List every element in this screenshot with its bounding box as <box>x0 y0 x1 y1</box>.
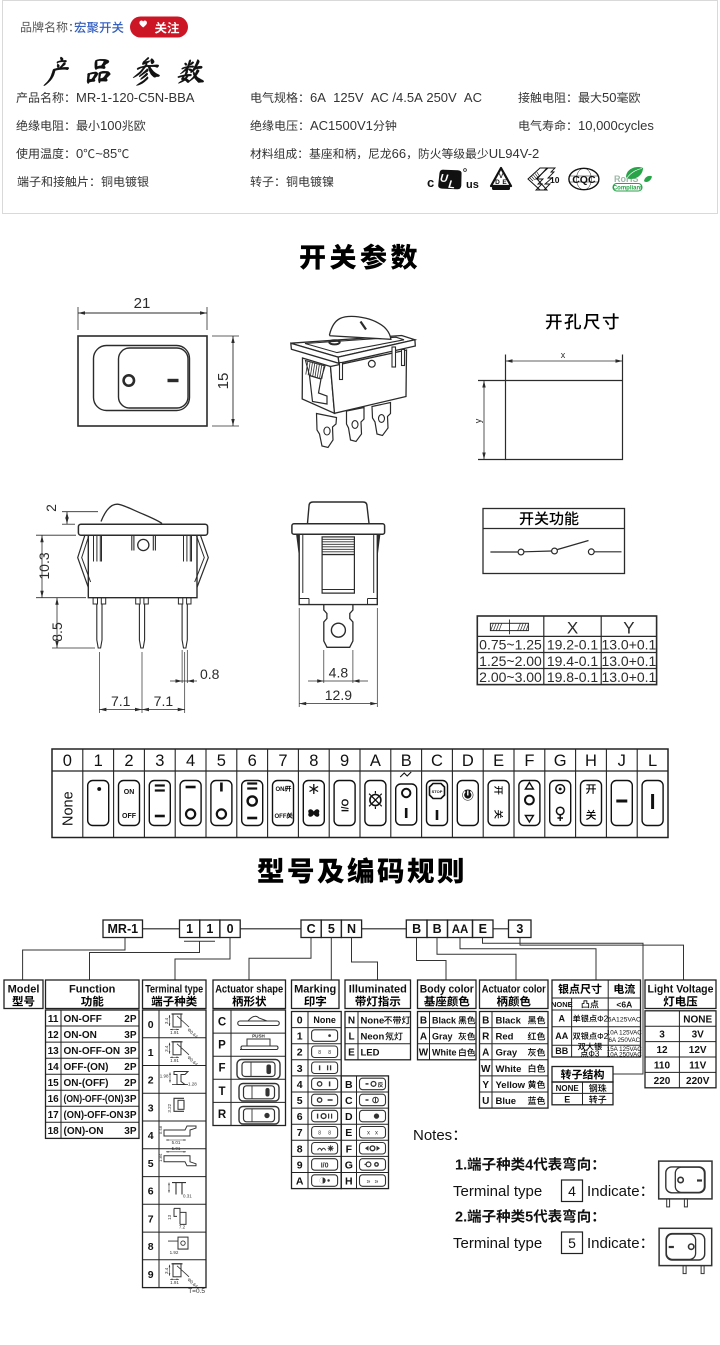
svg-text:C: C <box>431 752 443 770</box>
svg-text:18: 18 <box>48 1126 60 1137</box>
svg-text:H: H <box>585 752 597 770</box>
svg-text:1.91: 1.91 <box>170 1280 179 1285</box>
svg-text:8: 8 <box>328 1050 331 1056</box>
svg-text:3P: 3P <box>124 1126 137 1137</box>
svg-text:3V: 3V <box>692 1030 705 1041</box>
svg-text:PUSH: PUSH <box>252 1034 265 1039</box>
svg-text:3: 3 <box>297 1063 303 1075</box>
svg-text:19.4-0.1: 19.4-0.1 <box>547 653 599 669</box>
svg-text:13: 13 <box>167 1214 172 1220</box>
svg-text:Yellow: Yellow <box>496 1080 526 1091</box>
svg-text:6A 125V AC /4.5A 250V AC: 6A 125V AC /4.5A 250V AC <box>310 90 482 105</box>
svg-text:13.0+0.1: 13.0+0.1 <box>601 653 656 669</box>
svg-text:4: 4 <box>525 1158 533 1174</box>
svg-text:Terminal type: Terminal type <box>145 984 203 996</box>
svg-text:0.48: 0.48 <box>158 1125 163 1134</box>
svg-text:5.01: 5.01 <box>172 1146 181 1151</box>
svg-text:P: P <box>218 1040 226 1052</box>
svg-text:6A 250VAC: 6A 250VAC <box>609 1037 641 1044</box>
svg-text:6: 6 <box>148 1186 154 1198</box>
svg-text:Model: Model <box>8 984 40 996</box>
svg-text:10A 250VAC: 10A 250VAC <box>607 1052 643 1059</box>
svg-text:L: L <box>348 1032 354 1043</box>
svg-text:A: A <box>482 1048 489 1059</box>
svg-text:ON-ON: ON-ON <box>64 1030 97 1041</box>
svg-text:0: 0 <box>297 1015 303 1027</box>
svg-text:»: » <box>367 1179 371 1186</box>
svg-text:Y: Y <box>482 1080 489 1091</box>
svg-text:Red: Red <box>496 1032 514 1043</box>
svg-text:2: 2 <box>124 752 133 770</box>
svg-text:Terminal type: Terminal type <box>453 1183 542 1200</box>
svg-text:12: 12 <box>656 1045 668 1056</box>
svg-text:Φ3: Φ3 <box>588 1050 600 1059</box>
svg-text:White: White <box>432 1048 457 1058</box>
svg-text:5: 5 <box>525 1210 533 1226</box>
svg-text:L: L <box>648 752 657 770</box>
svg-text:13.0+0.1: 13.0+0.1 <box>601 637 656 653</box>
svg-text:2: 2 <box>43 504 59 512</box>
svg-text:11V: 11V <box>689 1061 707 1072</box>
svg-text:2P: 2P <box>124 1014 137 1025</box>
svg-text:ON: ON <box>124 789 135 796</box>
svg-text:(ON)-OFF-(ON): (ON)-OFF-(ON) <box>64 1094 124 1105</box>
svg-text:us: us <box>466 179 479 191</box>
svg-text:A: A <box>559 1014 566 1024</box>
svg-text:ON-OFF-ON: ON-OFF-ON <box>64 1046 121 1057</box>
svg-text:7.1: 7.1 <box>154 693 174 709</box>
svg-text:5: 5 <box>148 1158 154 1170</box>
svg-text:ON-(OFF): ON-(OFF) <box>64 1078 109 1089</box>
svg-text:N: N <box>347 922 356 936</box>
svg-text:T=0.5: T=0.5 <box>188 1288 205 1295</box>
svg-text:0: 0 <box>148 1019 154 1031</box>
svg-text:H: H <box>345 1176 353 1188</box>
svg-text:B: B <box>401 752 412 770</box>
svg-text:5.01: 5.01 <box>172 1140 181 1145</box>
svg-text:4: 4 <box>148 1130 154 1142</box>
svg-text:7.2: 7.2 <box>179 1224 186 1229</box>
svg-text:3P: 3P <box>124 1046 137 1057</box>
svg-text:0: 0 <box>227 922 234 936</box>
svg-text:13.0+0.1: 13.0+0.1 <box>601 669 656 685</box>
svg-text:E: E <box>345 1127 352 1139</box>
svg-text:A: A <box>370 752 381 770</box>
svg-text:8: 8 <box>318 1131 321 1137</box>
svg-text:7: 7 <box>297 1127 303 1139</box>
svg-text:15: 15 <box>48 1078 60 1089</box>
svg-text:MR-1-120-C5N-BBA: MR-1-120-C5N-BBA <box>76 90 195 105</box>
svg-text:Black: Black <box>496 1016 522 1027</box>
svg-text:C: C <box>307 922 316 936</box>
svg-text:0.75~1.25: 0.75~1.25 <box>479 637 542 653</box>
svg-text:x: x <box>367 1131 370 1137</box>
svg-text:J: J <box>618 752 626 770</box>
svg-text:x: x <box>375 1131 378 1137</box>
svg-text:1.84: 1.84 <box>158 1153 163 1162</box>
svg-text:R: R <box>482 1032 490 1043</box>
svg-text:Black: Black <box>432 1016 457 1026</box>
svg-text:0: 0 <box>76 146 83 161</box>
svg-text:2P: 2P <box>124 1062 137 1073</box>
svg-text:STOP: STOP <box>432 789 443 794</box>
svg-text:3: 3 <box>155 752 164 770</box>
svg-text:U: U <box>482 1096 489 1107</box>
svg-text:AA: AA <box>555 1031 568 1041</box>
svg-text:8: 8 <box>309 752 318 770</box>
svg-text:17: 17 <box>48 1110 60 1121</box>
svg-text:3.4: 3.4 <box>164 1045 169 1052</box>
svg-text:2: 2 <box>148 1075 154 1087</box>
svg-text:66: 66 <box>392 146 406 161</box>
svg-text:10: 10 <box>550 175 560 185</box>
svg-text:X: X <box>567 619 578 638</box>
svg-text:13: 13 <box>48 1046 60 1057</box>
svg-text:Indicate: Indicate <box>587 1183 640 1200</box>
svg-text:4: 4 <box>186 752 195 770</box>
svg-text:Notes: Notes <box>413 1127 452 1144</box>
svg-text:ON-OFF: ON-OFF <box>64 1014 102 1025</box>
svg-text:R: R <box>218 1109 227 1121</box>
svg-text:0.31: 0.31 <box>183 1194 192 1199</box>
svg-text:12: 12 <box>48 1030 60 1041</box>
svg-text:NONE: NONE <box>551 1000 573 1009</box>
svg-text:12.9: 12.9 <box>325 687 352 703</box>
svg-text:A: A <box>420 1032 427 1043</box>
svg-text:B: B <box>482 1016 489 1027</box>
svg-text:1.25~2.00: 1.25~2.00 <box>479 653 542 669</box>
svg-text:OFF-(ON): OFF-(ON) <box>64 1062 109 1073</box>
svg-text:B: B <box>433 922 442 936</box>
svg-text:c: c <box>427 175 434 190</box>
svg-text:BB: BB <box>555 1046 568 1056</box>
svg-text:D: D <box>345 1111 353 1123</box>
svg-text:1: 1 <box>297 1031 303 1043</box>
svg-text:E: E <box>493 752 504 770</box>
svg-text:8: 8 <box>148 1241 154 1253</box>
svg-text:~85: ~85 <box>95 146 117 161</box>
svg-text:Gray: Gray <box>432 1032 453 1042</box>
svg-text:AC1500V1: AC1500V1 <box>310 118 373 133</box>
svg-text:D: D <box>495 179 500 186</box>
svg-text:N: N <box>348 1016 355 1027</box>
svg-text:LED: LED <box>361 1048 380 1059</box>
svg-text:Actuator color: Actuator color <box>482 984 547 996</box>
svg-text:6A125VAC: 6A125VAC <box>608 1017 641 1024</box>
svg-text:6: 6 <box>248 752 257 770</box>
svg-text:OFF: OFF <box>122 813 137 820</box>
svg-text:F: F <box>218 1063 225 1075</box>
svg-text:Function: Function <box>69 984 116 996</box>
svg-text:110: 110 <box>654 1061 671 1072</box>
svg-text:I/0: I/0 <box>321 1162 329 1169</box>
svg-text:I/O: I/O <box>341 798 352 812</box>
svg-text:x: x <box>561 350 566 360</box>
svg-text:3P: 3P <box>124 1110 137 1121</box>
svg-text:1: 1 <box>148 1047 154 1059</box>
svg-text:9: 9 <box>340 752 349 770</box>
svg-text:B: B <box>345 1079 353 1091</box>
svg-text:1.91: 1.91 <box>170 1058 179 1063</box>
svg-text:None: None <box>313 1015 336 1025</box>
svg-text:0.8: 0.8 <box>200 666 220 682</box>
svg-text:1: 1 <box>94 752 103 770</box>
svg-text:AA: AA <box>452 924 469 936</box>
svg-text:21: 21 <box>134 295 151 312</box>
svg-text:None: None <box>60 791 76 826</box>
svg-text:3: 3 <box>659 1030 665 1041</box>
svg-text:220: 220 <box>654 1076 671 1087</box>
svg-text:UL94V-2: UL94V-2 <box>489 146 540 161</box>
svg-text:9: 9 <box>148 1269 154 1281</box>
svg-text:C: C <box>345 1095 353 1107</box>
svg-text:OFF/: OFF/ <box>275 814 289 820</box>
svg-text:15: 15 <box>215 373 232 390</box>
svg-text:16: 16 <box>48 1094 60 1105</box>
svg-text:B: B <box>420 1016 427 1027</box>
svg-text:Neon: Neon <box>361 1032 385 1043</box>
svg-text:MR-1: MR-1 <box>108 922 139 936</box>
svg-text:1.98: 1.98 <box>160 1074 169 1079</box>
svg-text:W: W <box>419 1048 429 1059</box>
svg-text:Light Voltage: Light Voltage <box>648 984 714 996</box>
svg-text:19.8-0.1: 19.8-0.1 <box>547 669 599 685</box>
svg-text:D: D <box>462 752 474 770</box>
svg-text:C: C <box>218 1017 226 1029</box>
svg-text:8: 8 <box>297 1143 303 1155</box>
svg-text:»: » <box>375 1179 379 1186</box>
svg-text:2.00~3.00: 2.00~3.00 <box>479 669 542 685</box>
svg-text:5: 5 <box>568 1235 576 1251</box>
svg-text:Actuator shape: Actuator shape <box>215 984 283 996</box>
svg-text:5: 5 <box>297 1095 303 1107</box>
svg-text:F: F <box>524 752 534 770</box>
svg-text:100: 100 <box>100 118 122 133</box>
svg-text:Blue: Blue <box>496 1096 517 1107</box>
svg-text:5: 5 <box>217 752 226 770</box>
svg-text:CQC: CQC <box>572 174 596 186</box>
svg-text:12V: 12V <box>689 1045 707 1056</box>
svg-text:5: 5 <box>328 922 335 936</box>
svg-text:1.91: 1.91 <box>170 1030 179 1035</box>
svg-text:4.8: 4.8 <box>329 665 349 681</box>
svg-text:9: 9 <box>297 1159 303 1171</box>
svg-text:3: 3 <box>148 1102 154 1114</box>
svg-text:220V: 220V <box>686 1076 710 1087</box>
svg-text:2P: 2P <box>124 1078 137 1089</box>
svg-text:Gray: Gray <box>496 1048 518 1059</box>
svg-text:y: y <box>473 418 483 423</box>
svg-text:E: E <box>348 1048 355 1059</box>
svg-text:<6A: <6A <box>616 1000 632 1010</box>
svg-text:10,000cycles: 10,000cycles <box>578 118 654 133</box>
svg-text:2: 2 <box>297 1047 303 1059</box>
svg-text:11: 11 <box>48 1014 59 1025</box>
svg-text:Illuminated: Illuminated <box>349 984 407 996</box>
svg-text:4: 4 <box>568 1183 576 1199</box>
svg-text:G: G <box>554 752 567 770</box>
svg-text:None: None <box>361 1016 385 1027</box>
svg-text:G: G <box>345 1159 353 1171</box>
svg-text:Compliant: Compliant <box>613 186 642 192</box>
svg-text:2.: 2. <box>455 1210 467 1226</box>
svg-text:E: E <box>564 1094 570 1104</box>
svg-text:W: W <box>481 1064 491 1075</box>
svg-text:3: 3 <box>516 922 523 936</box>
svg-text:Y: Y <box>623 619 634 638</box>
svg-text:1.: 1. <box>455 1158 467 1174</box>
svg-text:8: 8 <box>328 1131 331 1137</box>
svg-text:1.92: 1.92 <box>170 1250 179 1255</box>
svg-text:4: 4 <box>297 1079 303 1091</box>
svg-text:7: 7 <box>148 1213 154 1225</box>
svg-text:B: B <box>412 922 421 936</box>
svg-text:14: 14 <box>48 1062 60 1073</box>
svg-text:Indicate: Indicate <box>587 1235 640 1252</box>
svg-text:3.4: 3.4 <box>164 1267 169 1274</box>
svg-text:0: 0 <box>63 752 72 770</box>
svg-text:3P: 3P <box>124 1030 137 1041</box>
svg-text:(ON)-OFF-ON: (ON)-OFF-ON <box>64 1110 124 1121</box>
svg-text:ON/: ON/ <box>276 787 287 793</box>
svg-text:White: White <box>496 1064 522 1075</box>
svg-text:1: 1 <box>186 922 193 936</box>
svg-text:Body color: Body color <box>420 984 475 996</box>
svg-text:NONE: NONE <box>683 1014 712 1025</box>
svg-text:A: A <box>296 1176 304 1188</box>
svg-text:E: E <box>479 922 487 936</box>
svg-text:E: E <box>502 179 507 186</box>
svg-text:8: 8 <box>318 1050 321 1056</box>
svg-text:1.28: 1.28 <box>188 1082 197 1087</box>
svg-text:1: 1 <box>206 922 213 936</box>
svg-text:10.3: 10.3 <box>36 552 52 579</box>
svg-text:Marking: Marking <box>294 984 336 996</box>
svg-text:3P: 3P <box>124 1094 137 1105</box>
svg-text:6: 6 <box>297 1111 303 1123</box>
svg-text:3.4: 3.4 <box>164 1017 169 1024</box>
svg-text:F: F <box>346 1143 353 1155</box>
svg-text:50: 50 <box>602 90 616 105</box>
svg-text:7: 7 <box>278 752 287 770</box>
svg-text:Terminal type: Terminal type <box>453 1235 542 1252</box>
svg-text:10A 125VAC: 10A 125VAC <box>607 1030 643 1037</box>
svg-text:3.22: 3.22 <box>167 1103 172 1112</box>
svg-text:7.1: 7.1 <box>111 693 131 709</box>
svg-text:T: T <box>218 1086 225 1098</box>
svg-text:(ON)-ON: (ON)-ON <box>64 1126 104 1137</box>
svg-text:19.2-0.1: 19.2-0.1 <box>547 637 599 653</box>
svg-text:NONE: NONE <box>556 1084 580 1093</box>
